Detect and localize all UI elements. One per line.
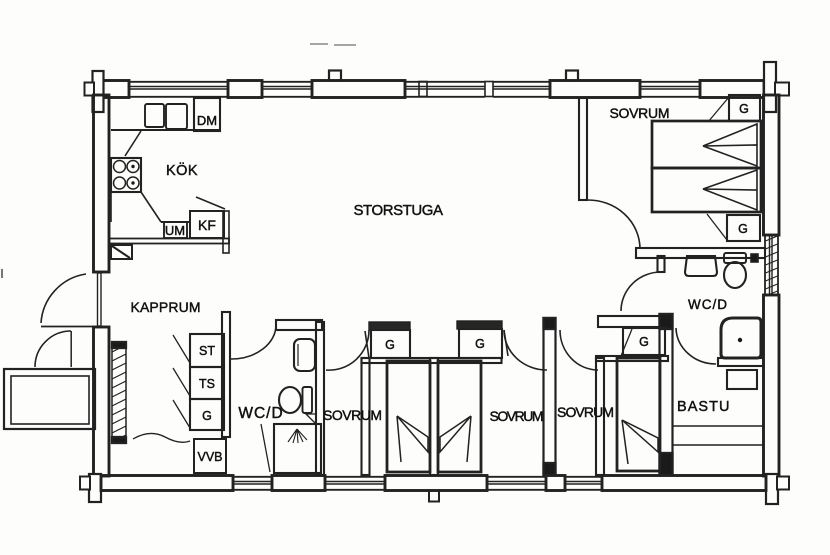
svg-text:VVB: VVB: [197, 450, 222, 464]
svg-text:WC/D: WC/D: [238, 405, 283, 422]
svg-text:G: G: [202, 409, 212, 423]
svg-text:G: G: [739, 102, 749, 116]
svg-text:KF: KF: [198, 217, 216, 233]
svg-text:SOVRUM: SOVRUM: [323, 407, 383, 423]
svg-text:ST: ST: [199, 344, 215, 358]
svg-text:WC/D: WC/D: [688, 297, 728, 312]
svg-text:G: G: [475, 337, 485, 351]
svg-text:BASTU: BASTU: [677, 399, 731, 415]
svg-text:STORSTUGA: STORSTUGA: [354, 202, 445, 219]
svg-text:KAPPRUM: KAPPRUM: [131, 299, 202, 315]
svg-text:UM: UM: [165, 223, 185, 238]
svg-text:G: G: [639, 335, 649, 349]
svg-text:DM: DM: [197, 113, 217, 128]
svg-text:SOVRUM: SOVRUM: [557, 404, 615, 420]
svg-text:G: G: [738, 222, 748, 236]
svg-text:KÖK: KÖK: [166, 161, 198, 179]
svg-text:SOVRUM: SOVRUM: [610, 105, 671, 121]
svg-text:SOVRUM: SOVRUM: [490, 408, 545, 424]
svg-text:G: G: [385, 338, 395, 352]
svg-text:TS: TS: [199, 377, 215, 391]
